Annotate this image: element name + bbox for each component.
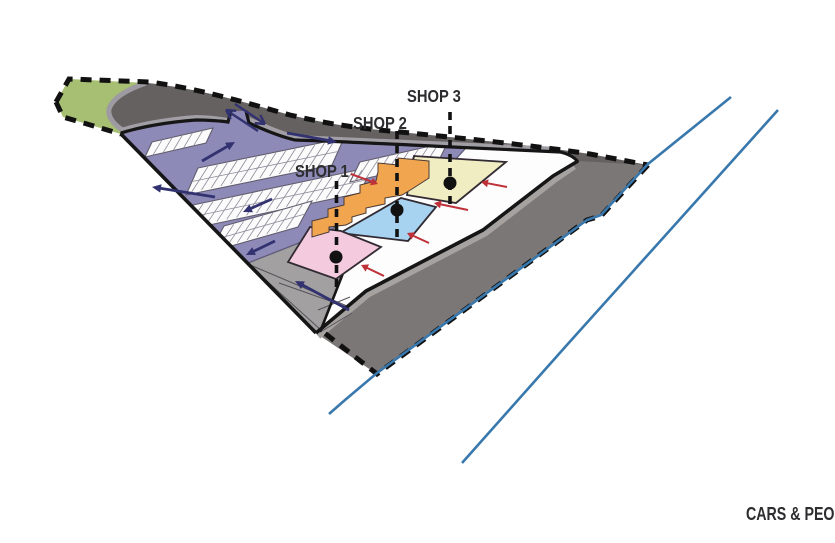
svg-text:CARS & PEOPLE: CARS & PEOPLE bbox=[746, 504, 835, 524]
svg-text:SHOP 2: SHOP 2 bbox=[353, 114, 407, 134]
svg-text:SHOP 1: SHOP 1 bbox=[295, 162, 349, 182]
svg-text:SHOP 3: SHOP 3 bbox=[407, 87, 461, 107]
